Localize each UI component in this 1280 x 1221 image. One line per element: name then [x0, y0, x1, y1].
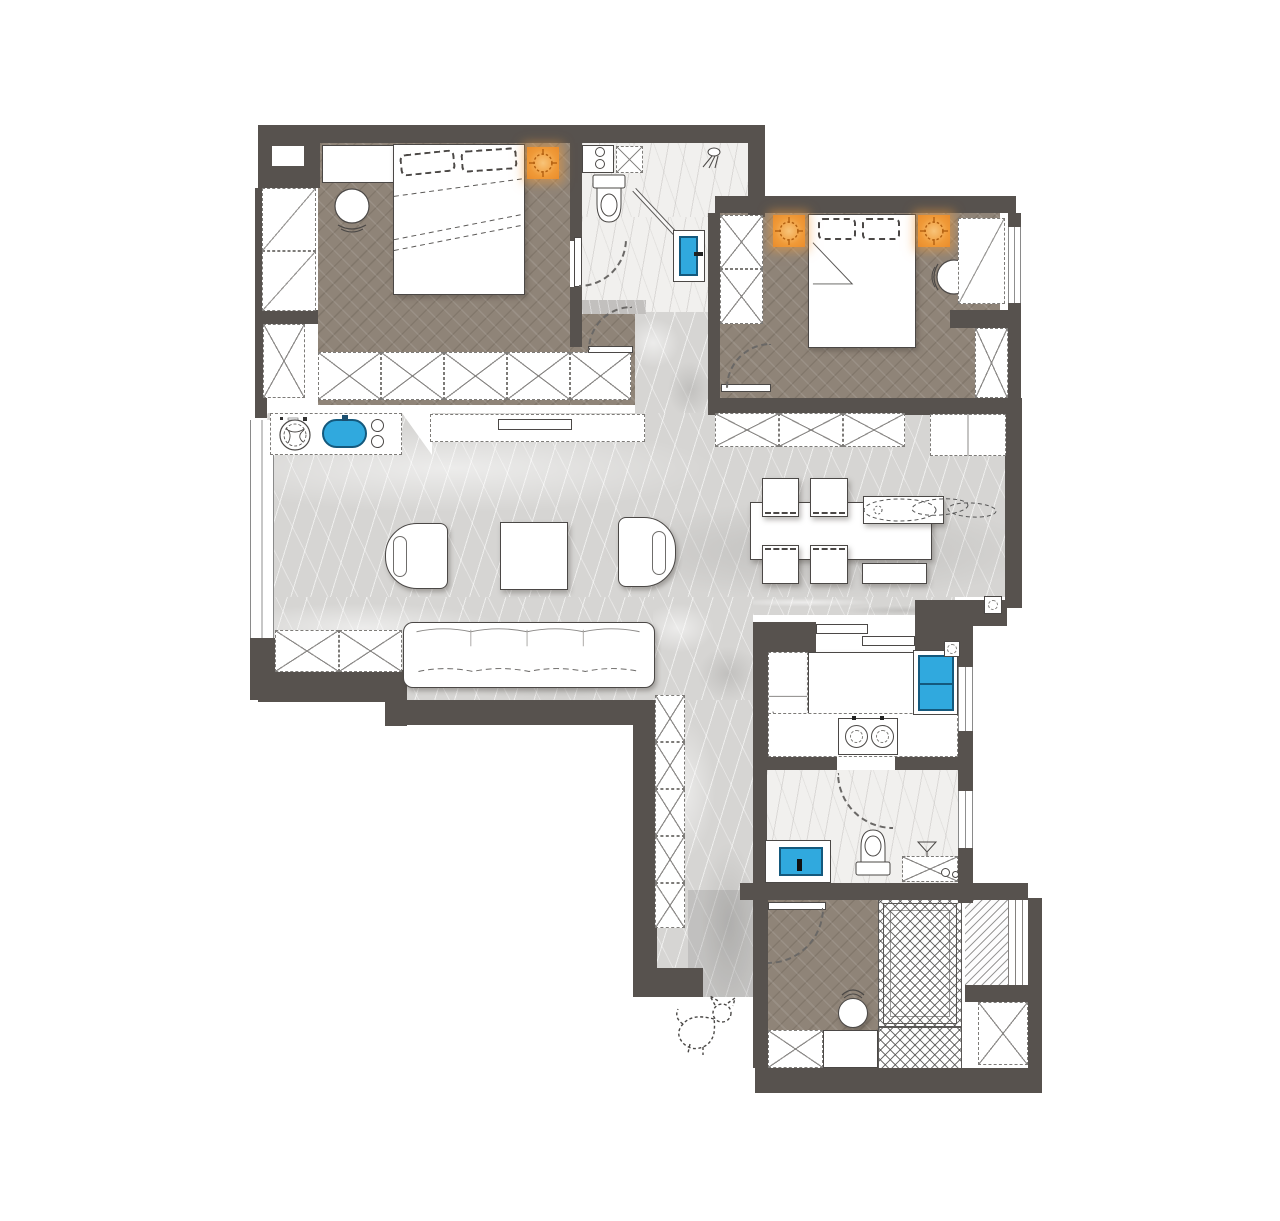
side-closet [262, 251, 316, 311]
drain-dot [941, 868, 950, 877]
wall-bath1-left-upper [570, 143, 582, 241]
chair-sketch [840, 983, 866, 999]
toilet [855, 826, 891, 876]
shower-floor-drain-grid [902, 856, 958, 882]
closet [975, 328, 1008, 398]
bedside-table [322, 145, 395, 183]
sink-divider [920, 683, 952, 685]
sofa [403, 622, 655, 688]
wall-top [318, 125, 765, 143]
washing-machine [276, 415, 314, 453]
sink-faucet-tick [342, 415, 348, 421]
armchair-right [618, 517, 676, 587]
chair-front-edge [765, 548, 796, 550]
ceiling-light [773, 215, 805, 247]
dining-chair [762, 545, 799, 584]
toilet [592, 174, 626, 226]
round-stool [332, 186, 372, 234]
dining-chair [762, 478, 799, 517]
window-kitchen [958, 667, 973, 731]
wall-bath2-bottom [740, 883, 973, 900]
drain-circle [947, 644, 957, 654]
burner [845, 725, 868, 748]
pillow [818, 218, 856, 240]
desk [958, 218, 1005, 304]
wardrobe-cell [570, 352, 631, 400]
drain-circle [988, 600, 998, 610]
window-bath2 [958, 791, 973, 848]
wall-bottom-left [258, 670, 405, 702]
armchair-cushion [652, 531, 666, 575]
bench-cabinet [823, 1030, 878, 1068]
sideboard-cell [779, 413, 843, 447]
burner-knob [371, 419, 384, 432]
dining-chair [810, 545, 848, 584]
counter-inset [498, 419, 572, 430]
sideboard-cell [843, 413, 905, 447]
wall-right-dining [1005, 398, 1022, 608]
vanity-faucet [797, 859, 802, 871]
wall-bedroom2-left [708, 213, 720, 400]
storage-cabinet [768, 1030, 823, 1068]
kitchen-double-sink [918, 655, 954, 711]
utility-sink [322, 419, 367, 448]
low-cabinet-cell [339, 630, 402, 672]
counter-knob [595, 159, 605, 169]
wall-living-bottom [395, 700, 657, 725]
deck-divider [878, 1026, 962, 1028]
storage-cell [655, 695, 685, 742]
storage-cell [655, 789, 685, 836]
wall-inset-vent [272, 146, 304, 166]
tall-cabinet [930, 414, 1006, 456]
wall-kitchen-bath2-a [753, 755, 837, 770]
side-closet-low [263, 324, 305, 398]
floor-drain [944, 641, 960, 657]
cooktop-knob [852, 716, 856, 720]
wall-bottom-left-block [753, 900, 768, 1068]
sliding-door-leaf [816, 624, 868, 634]
floor-side-strip [965, 898, 1008, 985]
coffee-table [500, 522, 568, 590]
ceiling-light [527, 147, 559, 179]
window-bedroom2 [1008, 227, 1021, 303]
burner-ring [850, 730, 863, 743]
wall-bottom [755, 1068, 1042, 1093]
storage-cell [655, 742, 685, 789]
wardrobe-cell [720, 215, 763, 269]
burner-ring [876, 730, 889, 743]
storage-cell [655, 836, 685, 883]
wardrobe-cell [381, 352, 444, 400]
dog-doodle [670, 993, 744, 1057]
side-closet [262, 188, 316, 251]
round-table [838, 998, 868, 1028]
counter-knob [595, 147, 605, 157]
wardrobe-cell [720, 269, 763, 324]
wardrobe-cell [444, 352, 507, 400]
wash-basin [679, 236, 698, 276]
wall-deck-top [960, 883, 1028, 900]
dining-chair [810, 478, 848, 517]
floor-corridor-top [653, 597, 753, 700]
cooktop-knob [880, 716, 884, 720]
service-shaft [616, 146, 643, 173]
sofa-cushion-sketch [404, 623, 654, 687]
wall-right-upper-a [1008, 213, 1021, 227]
plant-sketch [856, 492, 1000, 528]
armchair-cushion [393, 536, 407, 577]
ceiling-light [918, 215, 950, 247]
closet [978, 1002, 1028, 1065]
sliding-door-leaf [862, 636, 915, 646]
chair-front-edge [765, 512, 796, 514]
wall-bedroom2-top [715, 196, 1016, 213]
bench [862, 563, 927, 584]
wardrobe-cell [318, 352, 381, 400]
floor-drain [984, 596, 1002, 614]
wall-bottom-right [1028, 898, 1042, 1068]
wall-kitchen-right-a [958, 626, 973, 667]
floor-corridor-upper [635, 312, 708, 415]
pillow [862, 218, 900, 240]
wall-kitchen-left [753, 640, 768, 760]
burner-knob [371, 435, 384, 448]
chair-front-edge [813, 548, 845, 550]
drain-dot [952, 871, 959, 878]
floor-plan-canvas [0, 0, 1280, 1221]
wall-strip-bottom [965, 985, 1028, 1002]
storage-cell [655, 883, 685, 928]
wall-bath1-left-lower [570, 287, 582, 347]
wardrobe-cell [507, 352, 570, 400]
wall-kitchen-bath2-b [895, 755, 973, 770]
louver-strip [1008, 898, 1028, 985]
deck-border-inner [890, 910, 950, 1017]
kitchen-island [808, 652, 920, 716]
wall-desk-closet-divider [950, 310, 1016, 328]
pillow [460, 147, 517, 173]
wall-corridor-left [633, 725, 657, 968]
light-symbol [527, 147, 559, 179]
shower-head-icon [698, 146, 722, 170]
low-cabinet-cell [275, 630, 339, 672]
chair-front-edge [813, 512, 845, 514]
burner [871, 725, 894, 748]
wall-closet-divider [267, 310, 318, 324]
basin-faucet [694, 252, 703, 256]
sideboard-cell [715, 413, 779, 447]
